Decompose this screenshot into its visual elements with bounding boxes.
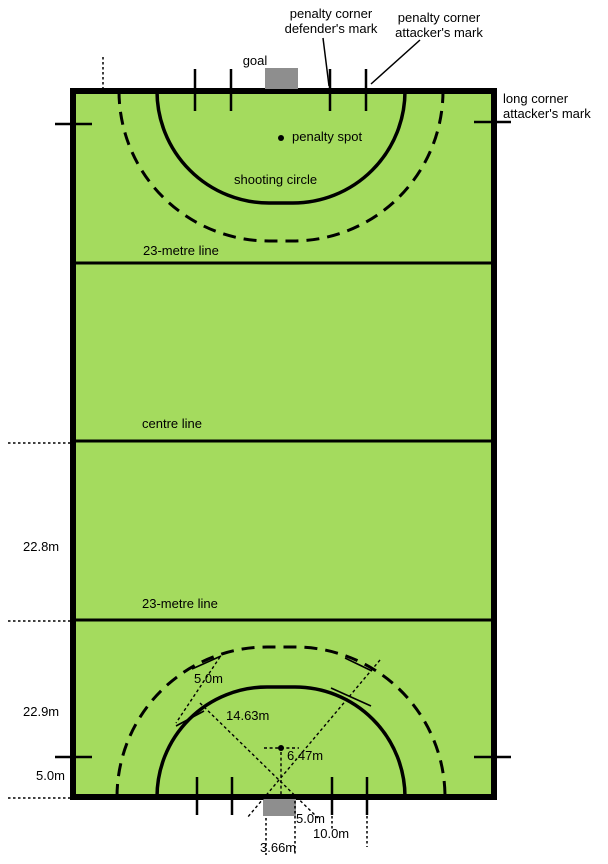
goal-bottom	[263, 799, 296, 816]
dim-6-47m-label: 6.47m	[287, 748, 323, 763]
field-outline	[73, 91, 494, 797]
leader-defenders-mark	[323, 38, 329, 86]
field-hockey-pitch-diagram: penalty corner defender's mark penalty c…	[0, 0, 608, 864]
goal-label: goal	[237, 53, 273, 68]
dim-14-63m-label: 14.63m	[226, 708, 269, 723]
dim-5m-circle-gap-label: 5.0m	[194, 671, 223, 686]
dim-22-9m-label: 22.9m	[23, 704, 59, 719]
dim-5m-left-label: 5.0m	[36, 768, 65, 783]
dim-22-8m-label: 22.8m	[23, 539, 59, 554]
penalty-corner-defenders-mark-label: penalty corner defender's mark	[278, 6, 384, 36]
penalty-spot-top	[278, 135, 284, 141]
leader-attackers-mark	[371, 40, 420, 84]
centre-line-label: centre line	[142, 416, 202, 431]
goal-top	[265, 68, 298, 89]
shooting-circle-label: shooting circle	[234, 172, 317, 187]
dim-5m-bottom-label: 5.0m	[296, 811, 325, 826]
dim-3-66m-label: 3.66m	[260, 840, 296, 855]
penalty-spot-label: penalty spot	[292, 129, 362, 144]
23-metre-line-lower-label: 23-metre line	[142, 596, 218, 611]
long-corner-attackers-mark-label: long corner attacker's mark	[503, 91, 603, 121]
23-metre-line-upper-label: 23-metre line	[143, 243, 219, 258]
penalty-corner-attackers-mark-label: penalty corner attacker's mark	[389, 10, 489, 40]
dim-10m-bottom-label: 10.0m	[313, 826, 349, 841]
